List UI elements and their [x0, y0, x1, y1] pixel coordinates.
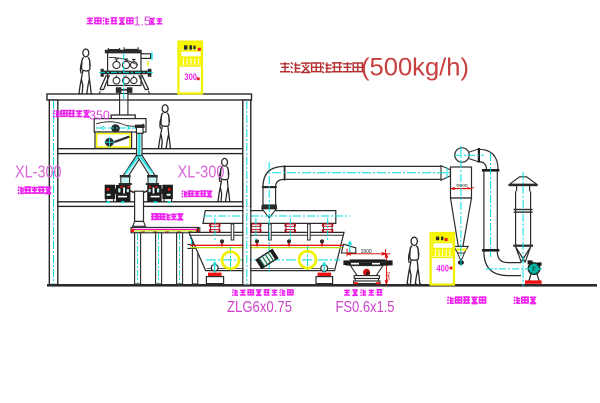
- svg-text:300: 300: [184, 72, 197, 82]
- svg-text:XL-300: XL-300: [15, 161, 62, 181]
- svg-text:Φ600: Φ600: [456, 183, 468, 188]
- svg-text:1500: 1500: [361, 249, 372, 255]
- svg-text:(500kg/h): (500kg/h): [361, 54, 469, 82]
- svg-text:XL-300: XL-300: [178, 162, 225, 182]
- svg-text:FS0.6x1.5: FS0.6x1.5: [336, 299, 395, 316]
- svg-text:540: 540: [386, 271, 392, 280]
- svg-text:ZLG6x0.75: ZLG6x0.75: [227, 299, 292, 316]
- svg-text:400: 400: [436, 263, 449, 273]
- svg-text:1.5: 1.5: [134, 15, 151, 29]
- svg-text:350: 350: [89, 109, 110, 123]
